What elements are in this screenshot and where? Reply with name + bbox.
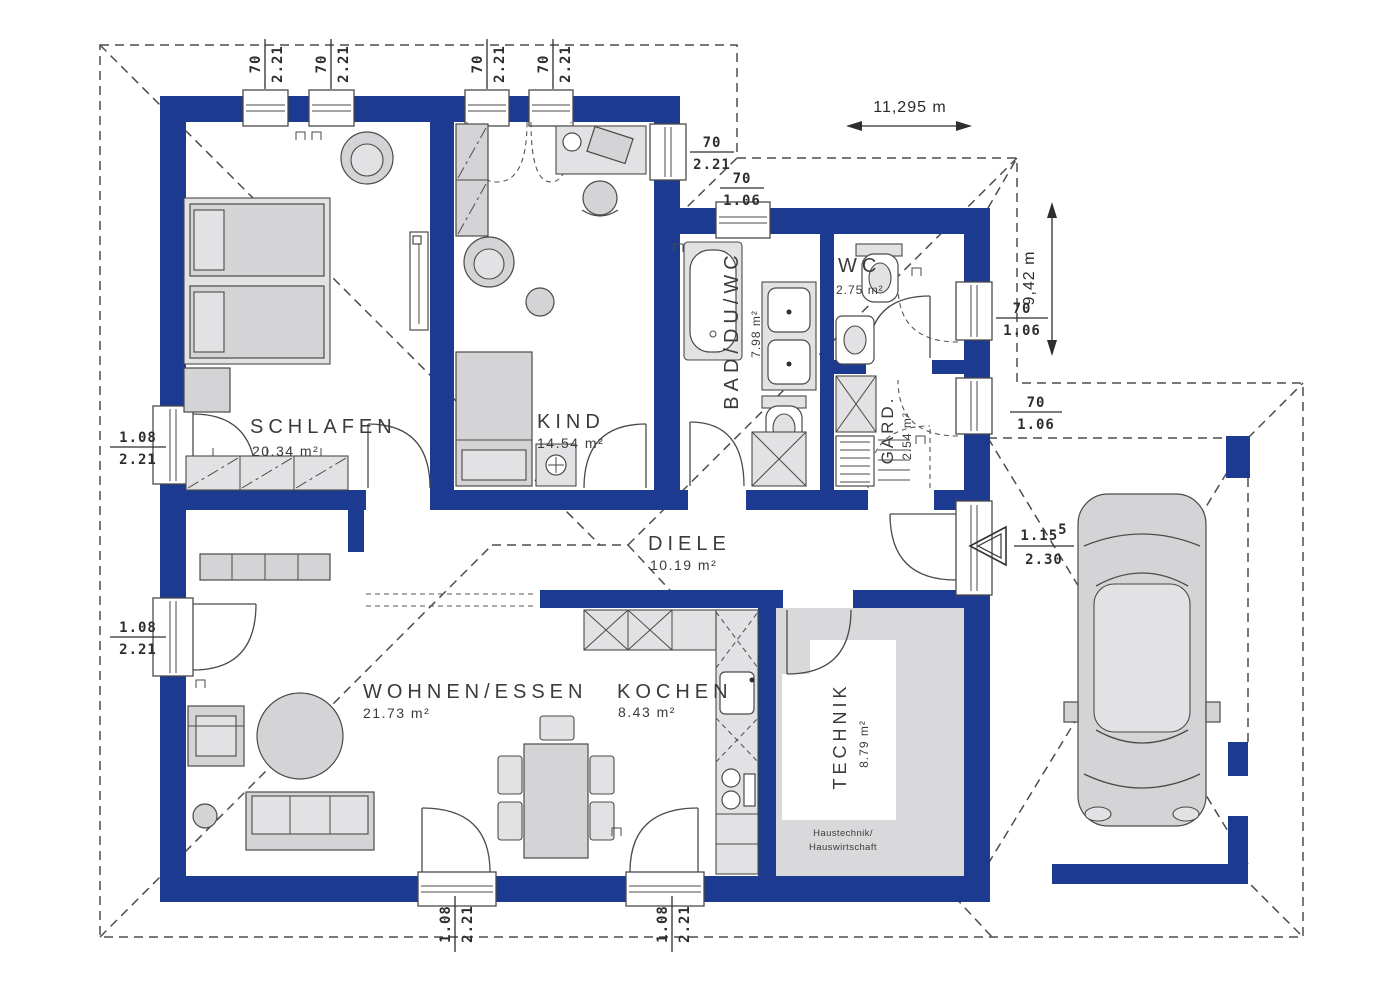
dim-window-top-3: 70 2.21 (470, 39, 508, 89)
label-wohnen: WOHNEN/ESSEN (363, 681, 587, 703)
carport-wall-gap (1228, 776, 1248, 816)
svg-text:2.21: 2.21 (693, 157, 731, 173)
kitchen-upper-cabinets (584, 610, 716, 650)
dining-chair (540, 716, 574, 740)
svg-text:2.30: 2.30 (1025, 552, 1063, 568)
car-mirror-right (1206, 702, 1220, 722)
carport-hip-ne (1248, 383, 1303, 438)
area-technik: 8.79 m² (857, 720, 871, 768)
svg-text:2.21: 2.21 (270, 45, 286, 83)
overall-width-label: 11,295 m (873, 99, 947, 116)
svg-text:70: 70 (536, 55, 552, 74)
vanity-double-sink (762, 282, 816, 390)
stool-kind (526, 288, 554, 316)
svg-text:70: 70 (733, 171, 752, 187)
svg-text:2.21: 2.21 (119, 452, 157, 468)
opening-technik (783, 588, 853, 610)
area-wc: 2.75 m² (836, 283, 884, 297)
door-wc (868, 296, 930, 358)
switch-mark (312, 132, 321, 140)
shower-shaft-bad (752, 432, 806, 486)
dim-window-east-1: 70 1.06 (996, 301, 1048, 339)
dresser (184, 368, 230, 412)
window-schlafen-2 (309, 90, 354, 126)
opening-wc (866, 358, 932, 376)
svg-text:1.06: 1.06 (1017, 417, 1055, 433)
wall-north-right (654, 208, 990, 234)
round-armchair (341, 132, 393, 184)
car-headlight-left (1085, 807, 1111, 821)
svg-text:2.21: 2.21 (119, 642, 157, 658)
dim-window-bad-north: 70 1.06 (720, 171, 764, 209)
dining-chair (498, 756, 522, 794)
area-kind: 14.54 m² (537, 435, 604, 451)
area-kochen: 8.43 m² (618, 704, 676, 720)
desk (556, 126, 646, 174)
area-diele: 10.19 m² (650, 557, 717, 573)
svg-text:1.155: 1.155 (1020, 522, 1067, 544)
svg-text:2.21: 2.21 (460, 905, 476, 943)
wall-diele-south (540, 590, 964, 608)
overall-width-dim: 11,295 m (846, 99, 972, 131)
car-roof (1094, 584, 1190, 732)
svg-text:1.08: 1.08 (119, 620, 157, 636)
label-bad: BAD/DU/WC (721, 250, 743, 409)
car-mirror-left (1064, 702, 1078, 722)
window-tilt-arc-3 (898, 286, 958, 342)
wall-central (184, 490, 964, 510)
switch-mark (916, 436, 925, 444)
wall-schlafen-kind (430, 122, 454, 490)
svg-text:2.21: 2.21 (558, 45, 574, 83)
svg-text:2.21: 2.21 (677, 905, 693, 943)
wall-west (160, 96, 186, 902)
carport-wall-south (1052, 864, 1248, 884)
wardrobe-rail-gard (836, 436, 910, 486)
shaft-gard (836, 376, 876, 432)
sofa (246, 792, 374, 850)
svg-text:70: 70 (703, 135, 722, 151)
carport-pillar (1226, 436, 1250, 478)
door-bad (690, 422, 744, 486)
window-kind-1 (465, 90, 509, 126)
wall-north-left (160, 96, 680, 122)
svg-text:1.08: 1.08 (438, 905, 454, 943)
bed-kind (456, 352, 532, 486)
opening-bad (688, 488, 746, 512)
dining-chair (590, 756, 614, 794)
wall-bad-wc (820, 234, 834, 490)
radiator-schlafen (410, 232, 428, 330)
dining-chair (498, 802, 522, 840)
area-gard: 2.54 m² (900, 412, 914, 460)
car-top-view (1064, 494, 1220, 826)
terrace-door-south-1 (418, 872, 496, 906)
svg-text:1.06: 1.06 (723, 193, 761, 209)
switch-mark (196, 680, 205, 688)
door-terrace-wohnen-south (422, 808, 490, 872)
carport (1052, 436, 1250, 884)
armchair-wohnen (188, 706, 244, 766)
opening-gard (868, 488, 934, 512)
svg-text:2.21: 2.21 (492, 45, 508, 83)
dim-window-top-2: 70 2.21 (314, 39, 352, 89)
label-wc: WC (838, 255, 881, 277)
label-technik: TECHNIK (830, 682, 850, 789)
plant (193, 804, 217, 828)
wall-south (160, 876, 990, 902)
overall-height-label: 9,42 m (1021, 251, 1038, 306)
label-gard: GARD. (878, 396, 897, 465)
sideboard-diele (200, 554, 330, 580)
window-east-1 (956, 282, 992, 340)
wardrobe-kind (456, 124, 488, 236)
wall-technik-west (758, 590, 776, 876)
lounge-chair-kind (464, 237, 514, 287)
dining-chair (590, 802, 614, 840)
dim-window-east-2: 70 1.06 (1010, 395, 1062, 433)
note-technik-2: Hauswirtschaft (809, 842, 877, 853)
dim-window-top-4: 70 2.21 (536, 39, 574, 89)
terrace-door-south-2 (626, 872, 704, 906)
svg-text:70: 70 (470, 55, 486, 74)
label-kind: KIND (537, 411, 605, 433)
window-east-2 (956, 378, 992, 434)
svg-text:70: 70 (248, 55, 264, 74)
dining-set (498, 716, 614, 858)
furniture-bad (684, 242, 816, 486)
svg-text:70: 70 (314, 55, 330, 74)
opening-schlafen (366, 488, 430, 512)
car-headlight-right (1173, 807, 1199, 821)
svg-text:1.08: 1.08 (655, 905, 671, 943)
dim-window-top-1: 70 2.21 (248, 39, 286, 89)
dim-entrance: 1.155 2.30 (1014, 522, 1074, 568)
area-schlafen: 20.34 m² (252, 443, 319, 459)
door-kochen (630, 808, 698, 872)
window-schlafen-1 (243, 90, 288, 126)
door-terrace-wohnen-west (193, 604, 256, 670)
note-technik-1: Haustechnik/ (813, 828, 873, 839)
window-kind-2 (529, 90, 573, 126)
area-wohnen: 21.73 m² (363, 705, 430, 721)
label-schlafen: SCHLAFEN (250, 416, 397, 438)
floor-plan-drawing: SCHLAFEN 20.34 m² KIND 14.54 m² BAD/DU/W… (0, 0, 1386, 989)
door-kind (584, 424, 646, 488)
svg-text:1.06: 1.06 (1003, 323, 1041, 339)
dim-window-kind-east: 70 2.21 (690, 135, 734, 173)
door-entrance (890, 514, 956, 580)
label-kochen: KOCHEN (617, 681, 733, 703)
svg-text:2.21: 2.21 (336, 45, 352, 83)
double-bed (184, 198, 330, 364)
svg-text:70: 70 (1027, 395, 1046, 411)
dining-table (524, 744, 588, 858)
window-kind-east (650, 124, 686, 180)
switch-mark (296, 132, 305, 140)
wall-diele-stub (348, 490, 364, 552)
sink-wc (836, 316, 874, 364)
switch-mark (912, 268, 921, 276)
coffee-table (257, 693, 343, 779)
desk-chair (582, 181, 618, 216)
svg-text:1.08: 1.08 (119, 430, 157, 446)
label-diele: DIELE (648, 533, 731, 555)
kitchen-counter (716, 610, 758, 874)
floor-plan-page: SCHLAFEN 20.34 m² KIND 14.54 m² BAD/DU/W… (0, 0, 1386, 989)
area-bad: 7.98 m² (749, 310, 763, 358)
